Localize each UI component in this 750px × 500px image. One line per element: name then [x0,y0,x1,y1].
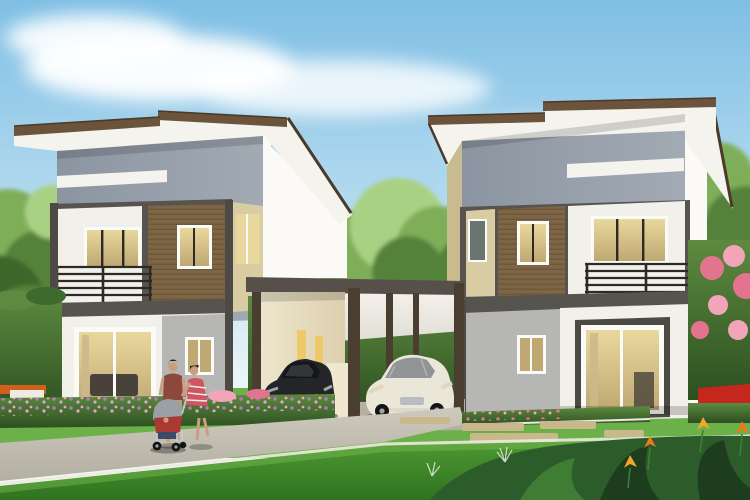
right-sliding-door [575,317,670,420]
window-mullion [530,338,532,371]
pink-flower-cluster [708,295,728,315]
stepping-stone [400,417,450,424]
hedge-top-bump [26,287,66,305]
right-garden [688,240,750,423]
door-stile [620,330,623,410]
lit-slit-window [315,336,323,363]
left-house-corner-trim [263,133,271,283]
left-corner-column [225,200,233,411]
pink-flower-cluster [723,245,745,267]
left-small-window [185,337,214,375]
window-mullion [246,214,248,264]
window-mullion [101,230,103,266]
pink-bush [246,389,270,399]
window-mullion [122,230,124,266]
architectural-rendering [0,0,750,500]
wheel-hub [174,445,177,448]
pink-bush [208,390,236,402]
curtain [590,333,598,407]
window-mullion [193,228,195,266]
cloud [5,14,185,62]
stepping-stone [604,430,644,437]
right-upper-window [591,216,668,264]
window-mullion [198,340,200,372]
window-glass [594,219,665,261]
baby-head [163,417,168,422]
left-upper-window [84,227,141,269]
door-stile [113,332,116,407]
person-shadow [189,444,213,450]
curtain [82,335,89,405]
right-house [428,98,733,424]
stepping-stone [462,423,524,431]
furniture-silhouette [634,372,654,408]
right-low-hedge [688,403,750,423]
right-house-side-wall [447,141,462,292]
grille-chrome [400,397,424,405]
window-mullion [642,219,644,261]
window-glass [470,221,485,260]
stroller-basket [157,432,178,439]
window-glass [87,230,138,266]
man-head [168,362,177,371]
right-beige-window [468,219,487,262]
stroller-wheel [180,442,186,448]
wheel-hub [155,444,158,447]
stepping-stone [540,421,596,429]
scene-canvas [0,0,750,500]
pink-flower-cluster [700,256,724,280]
window-mullion [532,224,534,262]
man-shirt [163,374,183,401]
left-wood-module-window [177,225,212,269]
woman-head [190,367,198,375]
pink-flower-cluster [691,321,709,339]
cloud [190,60,490,116]
lit-slit-window [297,330,306,362]
right-wood-module-window [517,221,549,265]
carport-post-front [348,288,360,420]
carport-post-front [454,283,464,415]
right-small-window [517,335,546,374]
pink-flower-cluster [728,320,748,340]
wheel-hub [379,408,384,413]
window-mullion [616,219,618,261]
